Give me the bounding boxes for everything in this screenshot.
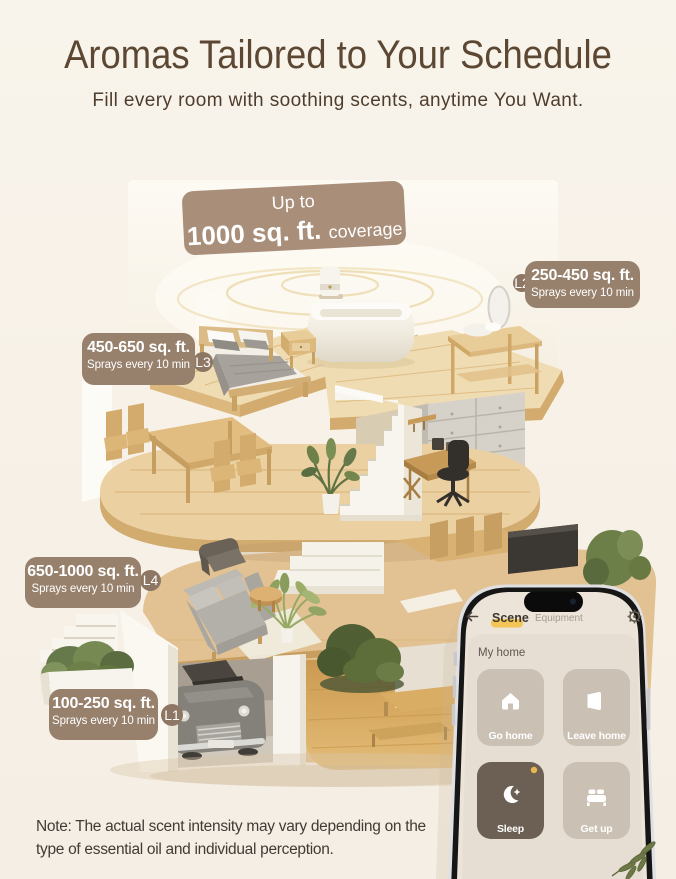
svg-text:Leave home: Leave home — [567, 730, 626, 742]
svg-text:My home: My home — [478, 647, 525, 659]
svg-text:Scene: Scene — [492, 611, 529, 625]
svg-text:Equipment: Equipment — [535, 613, 583, 624]
svg-text:Go home: Go home — [488, 730, 532, 742]
